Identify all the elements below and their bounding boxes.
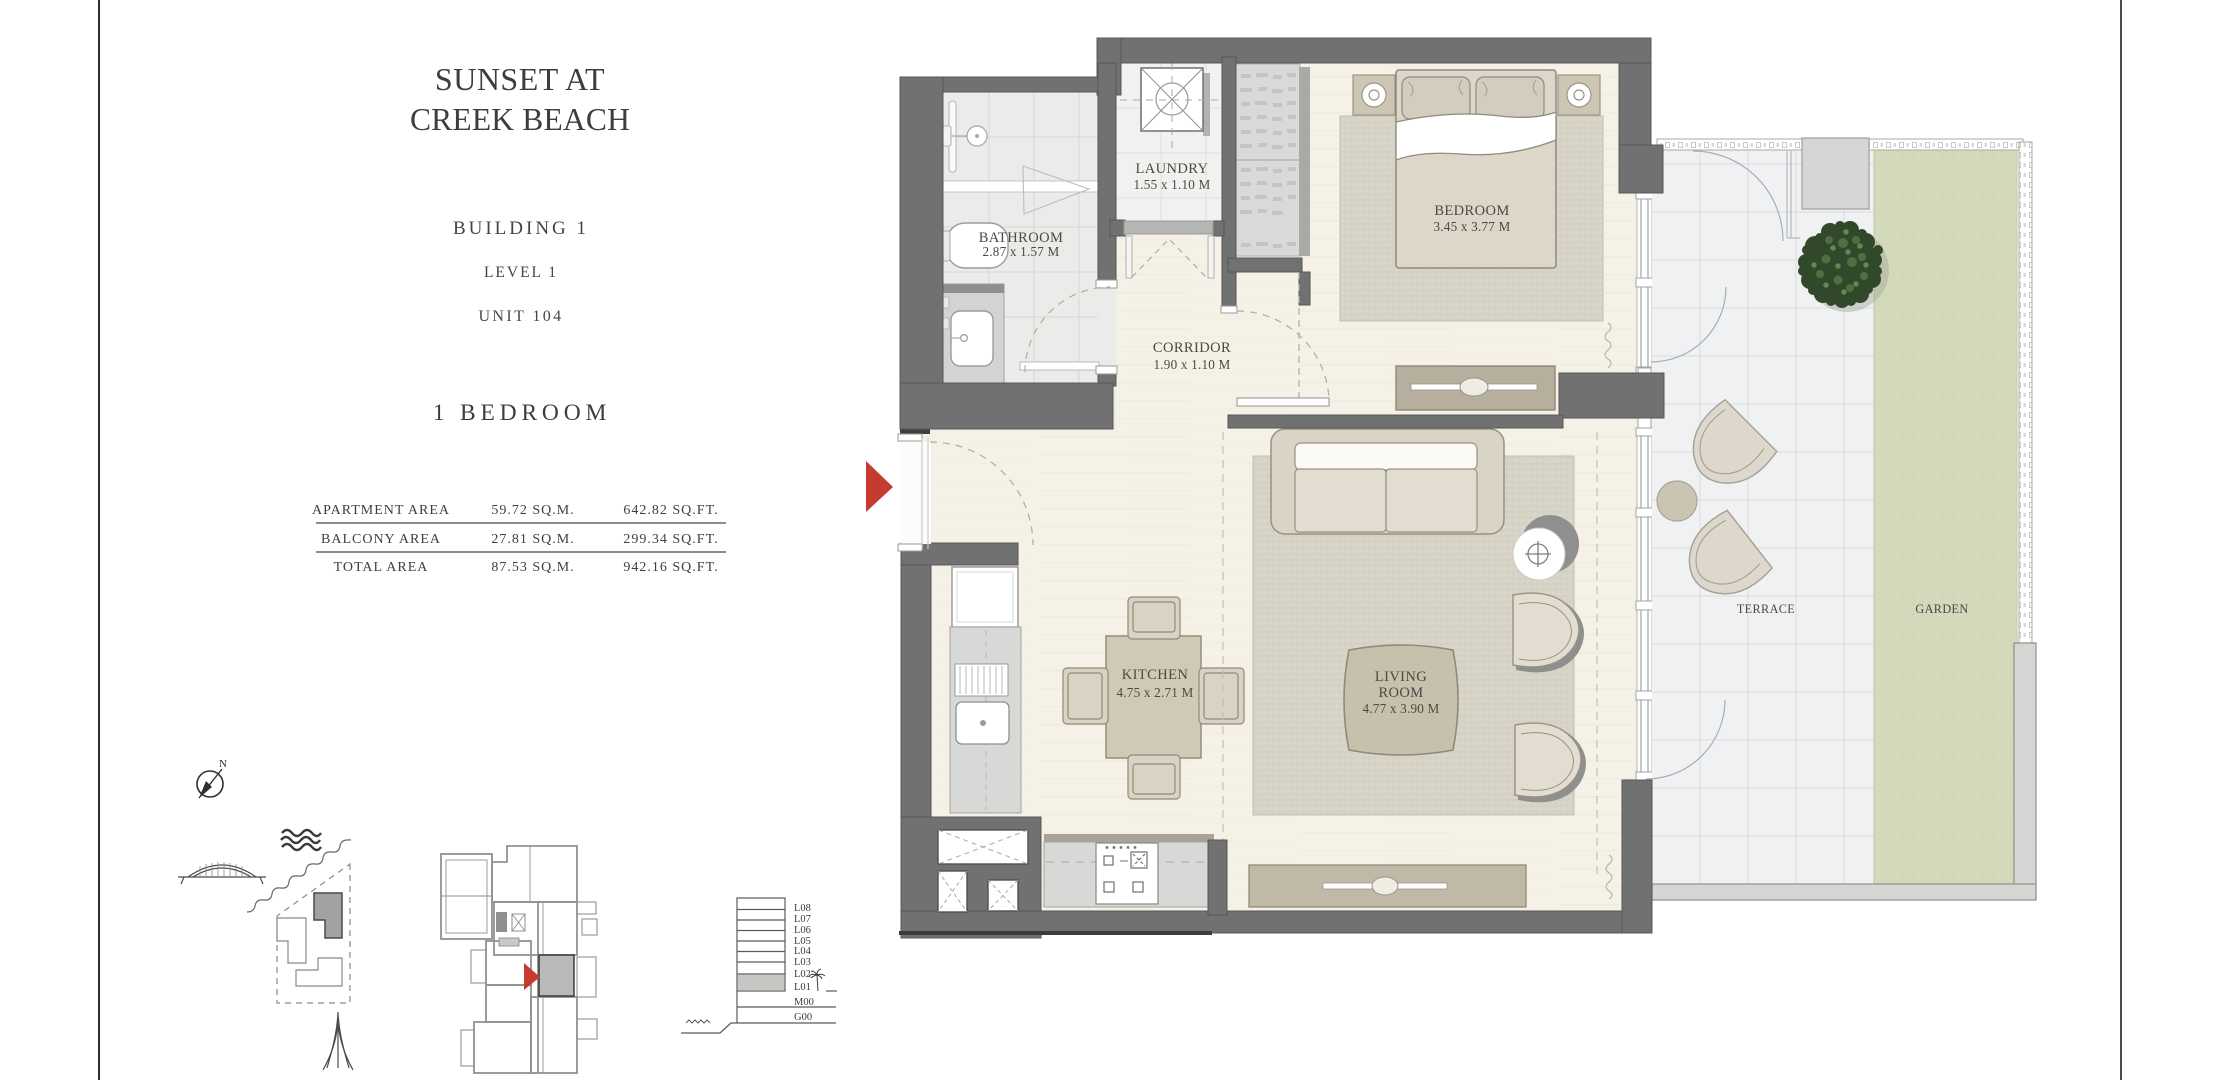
svg-text:APARTMENT AREA: APARTMENT AREA <box>312 503 450 518</box>
svg-text:27.81 SQ.M.: 27.81 SQ.M. <box>491 532 574 547</box>
svg-text:299.34 SQ.FT.: 299.34 SQ.FT. <box>623 532 718 547</box>
svg-text:1 BEDROOM: 1 BEDROOM <box>433 400 611 426</box>
svg-text:L08: L08 <box>794 903 811 914</box>
svg-text:L03: L03 <box>794 957 811 968</box>
svg-text:KITCHEN: KITCHEN <box>1122 667 1189 683</box>
svg-text:BUILDING 1: BUILDING 1 <box>453 218 589 239</box>
svg-text:L07: L07 <box>794 914 811 925</box>
svg-text:2.87 x 1.57 M: 2.87 x 1.57 M <box>983 244 1060 259</box>
svg-text:87.53 SQ.M.: 87.53 SQ.M. <box>491 560 574 575</box>
svg-text:59.72 SQ.M.: 59.72 SQ.M. <box>491 503 574 518</box>
svg-text:1.55 x 1.10 M: 1.55 x 1.10 M <box>1134 177 1211 192</box>
svg-text:1.90 x 1.10 M: 1.90 x 1.10 M <box>1154 357 1231 372</box>
svg-text:G00: G00 <box>794 1012 812 1023</box>
svg-text:UNIT 104: UNIT 104 <box>478 308 563 325</box>
svg-text:3.45 x 3.77 M: 3.45 x 3.77 M <box>1434 219 1511 234</box>
svg-text:642.82 SQ.FT.: 642.82 SQ.FT. <box>623 503 718 518</box>
svg-text:4.77 x 3.90 M: 4.77 x 3.90 M <box>1363 701 1440 716</box>
svg-text:SUNSET AT: SUNSET AT <box>435 61 605 97</box>
svg-text:4.75 x 2.71 M: 4.75 x 2.71 M <box>1117 685 1194 700</box>
svg-text:BALCONY AREA: BALCONY AREA <box>321 532 441 547</box>
svg-text:BEDROOM: BEDROOM <box>1434 203 1509 219</box>
svg-text:M00: M00 <box>794 997 814 1008</box>
svg-text:GARDEN: GARDEN <box>1915 602 1968 616</box>
svg-text:LEVEL 1: LEVEL 1 <box>484 264 558 281</box>
svg-text:LIVING: LIVING <box>1375 669 1427 685</box>
svg-text:TOTAL AREA: TOTAL AREA <box>334 560 429 575</box>
svg-text:L06: L06 <box>794 925 811 936</box>
svg-text:L04: L04 <box>794 946 812 957</box>
svg-text:CORRIDOR: CORRIDOR <box>1153 340 1231 356</box>
svg-text:ROOM: ROOM <box>1378 685 1423 701</box>
svg-text:CREEK BEACH: CREEK BEACH <box>410 102 630 137</box>
svg-text:L01: L01 <box>794 982 811 993</box>
svg-text:LAUNDRY: LAUNDRY <box>1136 161 1209 177</box>
svg-text:N: N <box>219 758 227 770</box>
svg-text:942.16 SQ.FT.: 942.16 SQ.FT. <box>623 560 718 575</box>
svg-text:TERRACE: TERRACE <box>1737 602 1795 616</box>
svg-text:L02: L02 <box>794 969 811 980</box>
